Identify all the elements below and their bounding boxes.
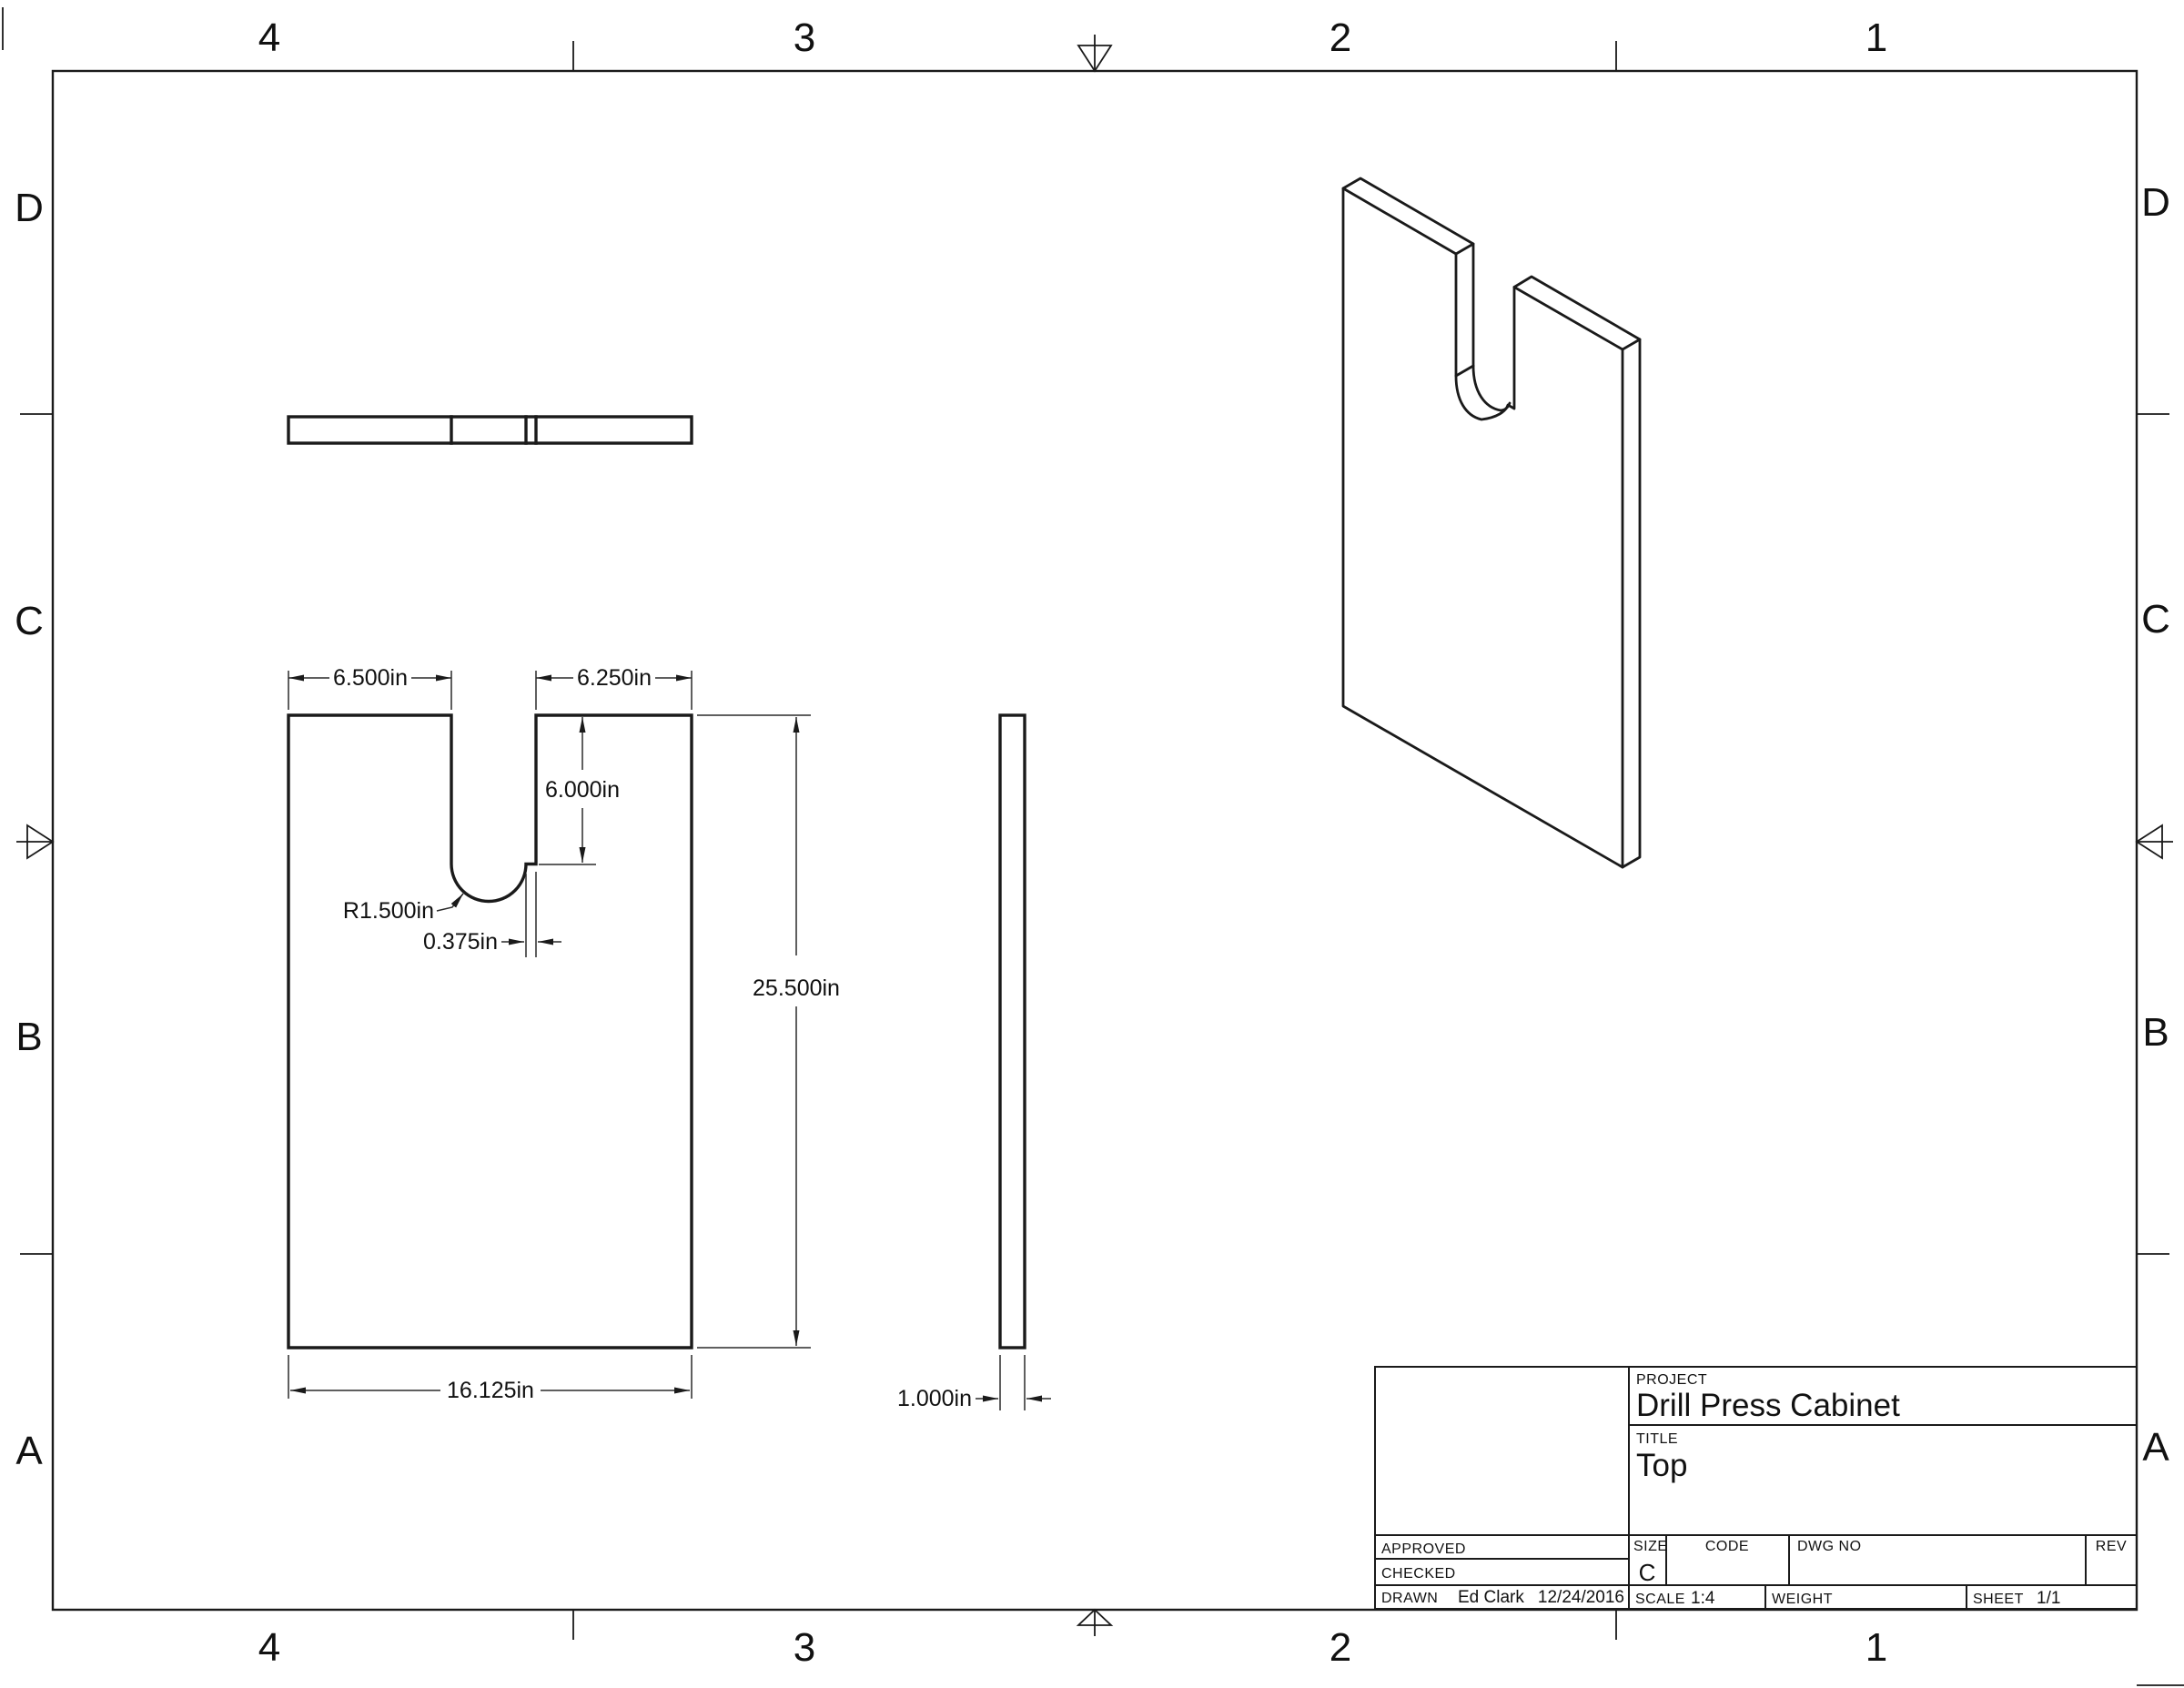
extension-lines <box>1000 1355 1025 1410</box>
isometric-view <box>1343 178 1640 867</box>
drawn-label: DRAWN <box>1381 1591 1438 1606</box>
weight-label: WEIGHT <box>1772 1592 1833 1607</box>
dim-text-overall-height: 25.500in <box>753 975 840 1001</box>
dim-text-slot-depth: 6.000in <box>545 777 620 803</box>
dimension-thickness: 1.000in <box>897 1355 1051 1411</box>
scale-value: 1:4 <box>1691 1589 1715 1608</box>
dwg-no-label: DWG NO <box>1797 1539 1862 1554</box>
zone-label-left-b: B <box>15 1015 42 1059</box>
zone-label-left-c: C <box>15 599 44 643</box>
iso-front-face <box>1343 188 1623 867</box>
side-view <box>1000 715 1025 1348</box>
rev-label: REV <box>2096 1539 2127 1554</box>
sheet-frame <box>3 7 2184 1685</box>
top-view-slot-edges <box>451 417 536 443</box>
title-label: TITLE <box>1636 1431 1678 1447</box>
top-view-outline <box>288 417 692 443</box>
code-label: CODE <box>1705 1539 1749 1554</box>
dimension-overall-width: 16.125in <box>288 1355 692 1403</box>
sheet-value: 1/1 <box>2037 1589 2060 1608</box>
dimension-overall-height: 25.500in <box>697 715 840 1348</box>
center-mark-right <box>2137 825 2173 858</box>
center-mark-bottom <box>1078 1610 1111 1636</box>
sheet-label: SHEET <box>1973 1592 2024 1607</box>
center-mark-top <box>1078 35 1111 71</box>
center-mark-left <box>16 825 53 858</box>
zone-label-top-4: 4 <box>258 15 280 60</box>
top-view <box>288 417 692 443</box>
zone-label-right-a: A <box>2142 1425 2169 1470</box>
zone-label-left-a: A <box>15 1429 43 1473</box>
zone-label-bottom-1: 1 <box>1865 1625 1887 1670</box>
dim-text-step-width: 0.375in <box>423 929 498 955</box>
iso-back-arc <box>1473 366 1510 410</box>
part-title: Top <box>1636 1448 1687 1483</box>
size-value: C <box>1639 1559 1656 1586</box>
zone-label-bottom-4: 4 <box>258 1625 280 1670</box>
border-frame <box>53 71 2137 1610</box>
zone-label-right-b: B <box>2142 1010 2169 1055</box>
zone-label-bottom-3: 3 <box>794 1625 815 1670</box>
project-name: Drill Press Cabinet <box>1636 1388 1900 1423</box>
project-label: PROJECT <box>1636 1372 1707 1388</box>
scale-label: SCALE <box>1635 1592 1685 1607</box>
zone-label-top-1: 1 <box>1865 15 1887 60</box>
dim-text-top-right-width: 6.250in <box>577 665 652 691</box>
title-block: PROJECT Drill Press Cabinet TITLE Top AP… <box>1375 1367 2137 1609</box>
zone-label-right-d: D <box>2141 180 2170 225</box>
drawing-sheet: 4 3 2 1 4 3 2 1 D C B A D C B A <box>0 0 2184 1688</box>
dim-text-overall-width: 16.125in <box>447 1378 534 1403</box>
front-view-outline <box>288 715 692 1348</box>
extension-lines <box>526 872 536 957</box>
drawn-date: 12/24/2016 <box>1538 1588 1624 1607</box>
dimension-slot-depth: 6.000in <box>539 717 620 864</box>
radius-leader <box>437 894 463 911</box>
dimension-step-width: 0.375in <box>423 872 561 957</box>
dimensions: 6.500in 6.250in 6.000in R1.500in 0.375in <box>288 665 1051 1411</box>
side-view-outline <box>1000 715 1025 1348</box>
drawn-by: Ed Clark <box>1458 1588 1524 1607</box>
dim-text-top-left-width: 6.500in <box>333 665 408 691</box>
zone-label-bottom-2: 2 <box>1330 1625 1351 1670</box>
zone-label-top-3: 3 <box>794 15 815 60</box>
dim-text-slot-radius: R1.500in <box>343 898 434 924</box>
zone-label-top-2: 2 <box>1330 15 1351 60</box>
dim-text-thickness: 1.000in <box>897 1386 972 1411</box>
dimension-slot-radius: R1.500in <box>343 894 463 924</box>
zone-label-right-c: C <box>2141 597 2170 642</box>
dimension-top-left-width: 6.500in <box>288 665 451 710</box>
size-label: SIZE <box>1633 1539 1668 1554</box>
iso-slot-wall-arc-junction <box>1456 366 1473 376</box>
front-view <box>288 715 692 1348</box>
iso-top-right-strip <box>1514 277 1640 349</box>
zone-label-left-d: D <box>15 186 44 230</box>
checked-label: CHECKED <box>1381 1566 1456 1582</box>
zone-ticks-right <box>2137 414 2169 1254</box>
approved-label: APPROVED <box>1381 1541 1466 1557</box>
zone-ticks-left <box>20 414 53 1254</box>
extension-lines <box>697 715 811 1348</box>
iso-right-back-edge <box>1623 339 1640 867</box>
iso-top-left-strip <box>1343 178 1473 254</box>
dimension-top-right-width: 6.250in <box>536 665 692 710</box>
